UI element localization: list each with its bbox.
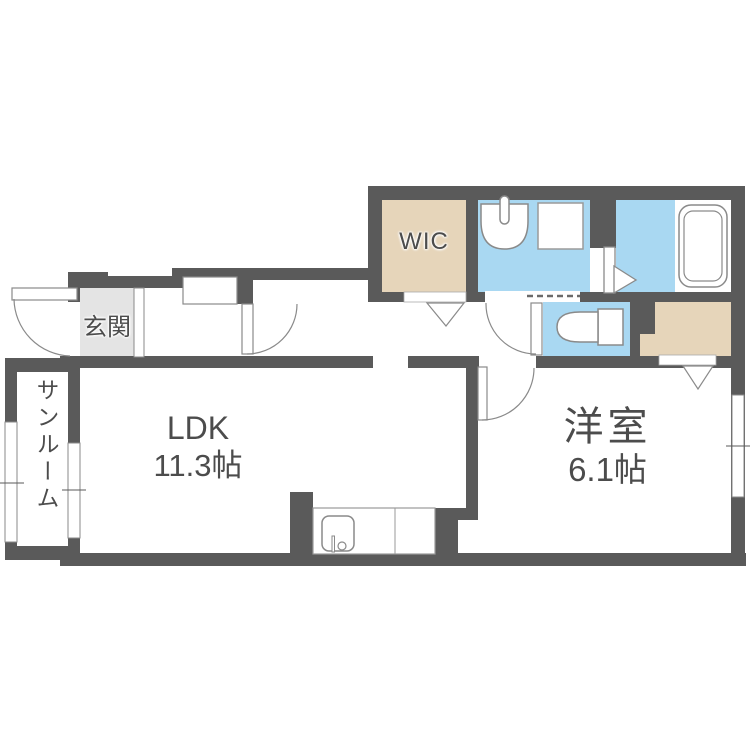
wall	[60, 356, 373, 368]
wall	[368, 186, 744, 200]
door-swing-arc-icon	[247, 304, 297, 354]
ldk-label: LDK 11.3帖	[88, 410, 308, 484]
wall	[5, 358, 17, 422]
washroom-door	[486, 303, 542, 355]
entrance-door	[12, 288, 77, 356]
door-leaf	[242, 304, 253, 354]
hall-door	[242, 304, 297, 354]
closet-floor-upper	[655, 302, 735, 332]
yoshitsu-label: 洋室 6.1帖	[500, 404, 715, 490]
door-swing-arc-icon	[486, 303, 536, 354]
ldk-name: LDK	[88, 410, 308, 447]
floor-plan-drawing	[0, 0, 750, 750]
bathtub-icon	[679, 205, 727, 287]
wall	[237, 278, 253, 304]
faucet-icon	[338, 542, 346, 550]
ldk-size: 11.3帖	[88, 447, 308, 484]
folding-door-marker-icon	[427, 303, 464, 326]
wall	[60, 553, 746, 566]
folding-door-marker-icon	[683, 366, 713, 389]
window-icon	[5, 422, 17, 542]
wall	[466, 198, 478, 302]
wall	[590, 198, 616, 248]
wall	[290, 492, 313, 554]
shoe-cabinet	[183, 277, 237, 304]
faucet-icon	[332, 536, 335, 552]
kitchen-counter	[313, 508, 435, 554]
wall	[630, 334, 640, 356]
door-swing-arc-icon	[14, 299, 70, 356]
closet-opening	[659, 355, 716, 365]
yoshitsu-name: 洋室	[500, 404, 715, 450]
yoshitsu-door-opening	[479, 356, 536, 368]
door-leaf	[12, 288, 77, 300]
genkan-label: 玄関	[79, 307, 135, 342]
washing-machine-pan-icon	[538, 203, 583, 249]
washbasin-icon	[481, 196, 528, 249]
wall	[68, 358, 80, 443]
wall	[466, 356, 478, 510]
wic-opening	[404, 292, 466, 302]
wall	[68, 272, 108, 288]
door-leaf	[478, 367, 487, 420]
floor-plan: WIC 玄関 サンルーム LDK 11.3帖 洋室 6.1帖	[0, 0, 750, 750]
ldk-opening	[373, 356, 408, 368]
closet-floor-lower	[640, 332, 735, 356]
wall	[630, 300, 655, 334]
wic-label: WIC	[382, 228, 466, 256]
toilet-icon	[557, 309, 623, 345]
wall	[368, 186, 382, 302]
wall	[433, 520, 458, 554]
genkan-step-strip	[134, 288, 144, 357]
door-leaf	[531, 303, 542, 355]
yoshitsu-size: 6.1帖	[500, 450, 715, 490]
sunroom-label: サンルーム	[29, 378, 63, 553]
wall	[731, 186, 745, 302]
